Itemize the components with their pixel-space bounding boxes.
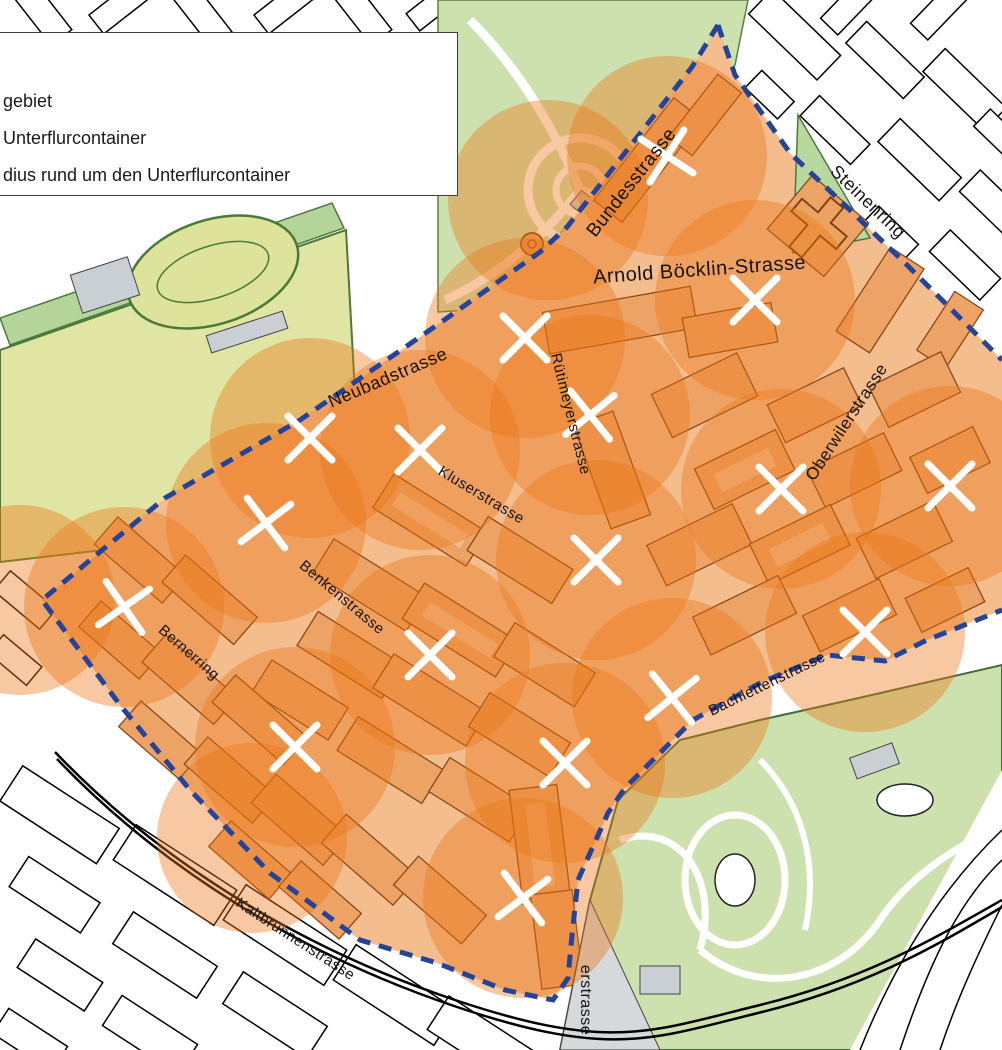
map-shape	[846, 21, 924, 98]
map-shape	[17, 939, 103, 1011]
map-shape	[9, 856, 100, 932]
map: BundesstrasseSteinenringArnold Böcklin-S…	[0, 0, 1002, 1050]
legend-item-radius: dius rund um den Unterflurcontainer	[3, 157, 457, 194]
map-shape	[640, 966, 680, 994]
map-shape	[254, 0, 316, 34]
map-shape	[959, 170, 1002, 240]
map-shape	[878, 119, 961, 201]
map-shape	[102, 995, 197, 1050]
map-shape	[0, 766, 119, 864]
legend-item-container: Unterflurcontainer	[3, 120, 457, 157]
map-shape	[113, 912, 218, 998]
map-shape	[223, 972, 328, 1050]
map-shape	[929, 230, 1000, 300]
map-shape	[427, 996, 533, 1050]
map-shape	[877, 784, 933, 816]
legend-item-area: gebiet	[3, 83, 457, 120]
legend: gebiet Unterflurcontainer dius rund um d…	[0, 32, 458, 196]
map-shape	[715, 854, 755, 906]
map-shape	[911, 0, 970, 40]
street-label-erstrasse: erstrasse	[577, 965, 594, 1035]
map-shape	[0, 1008, 68, 1050]
map-shape	[89, 0, 151, 34]
